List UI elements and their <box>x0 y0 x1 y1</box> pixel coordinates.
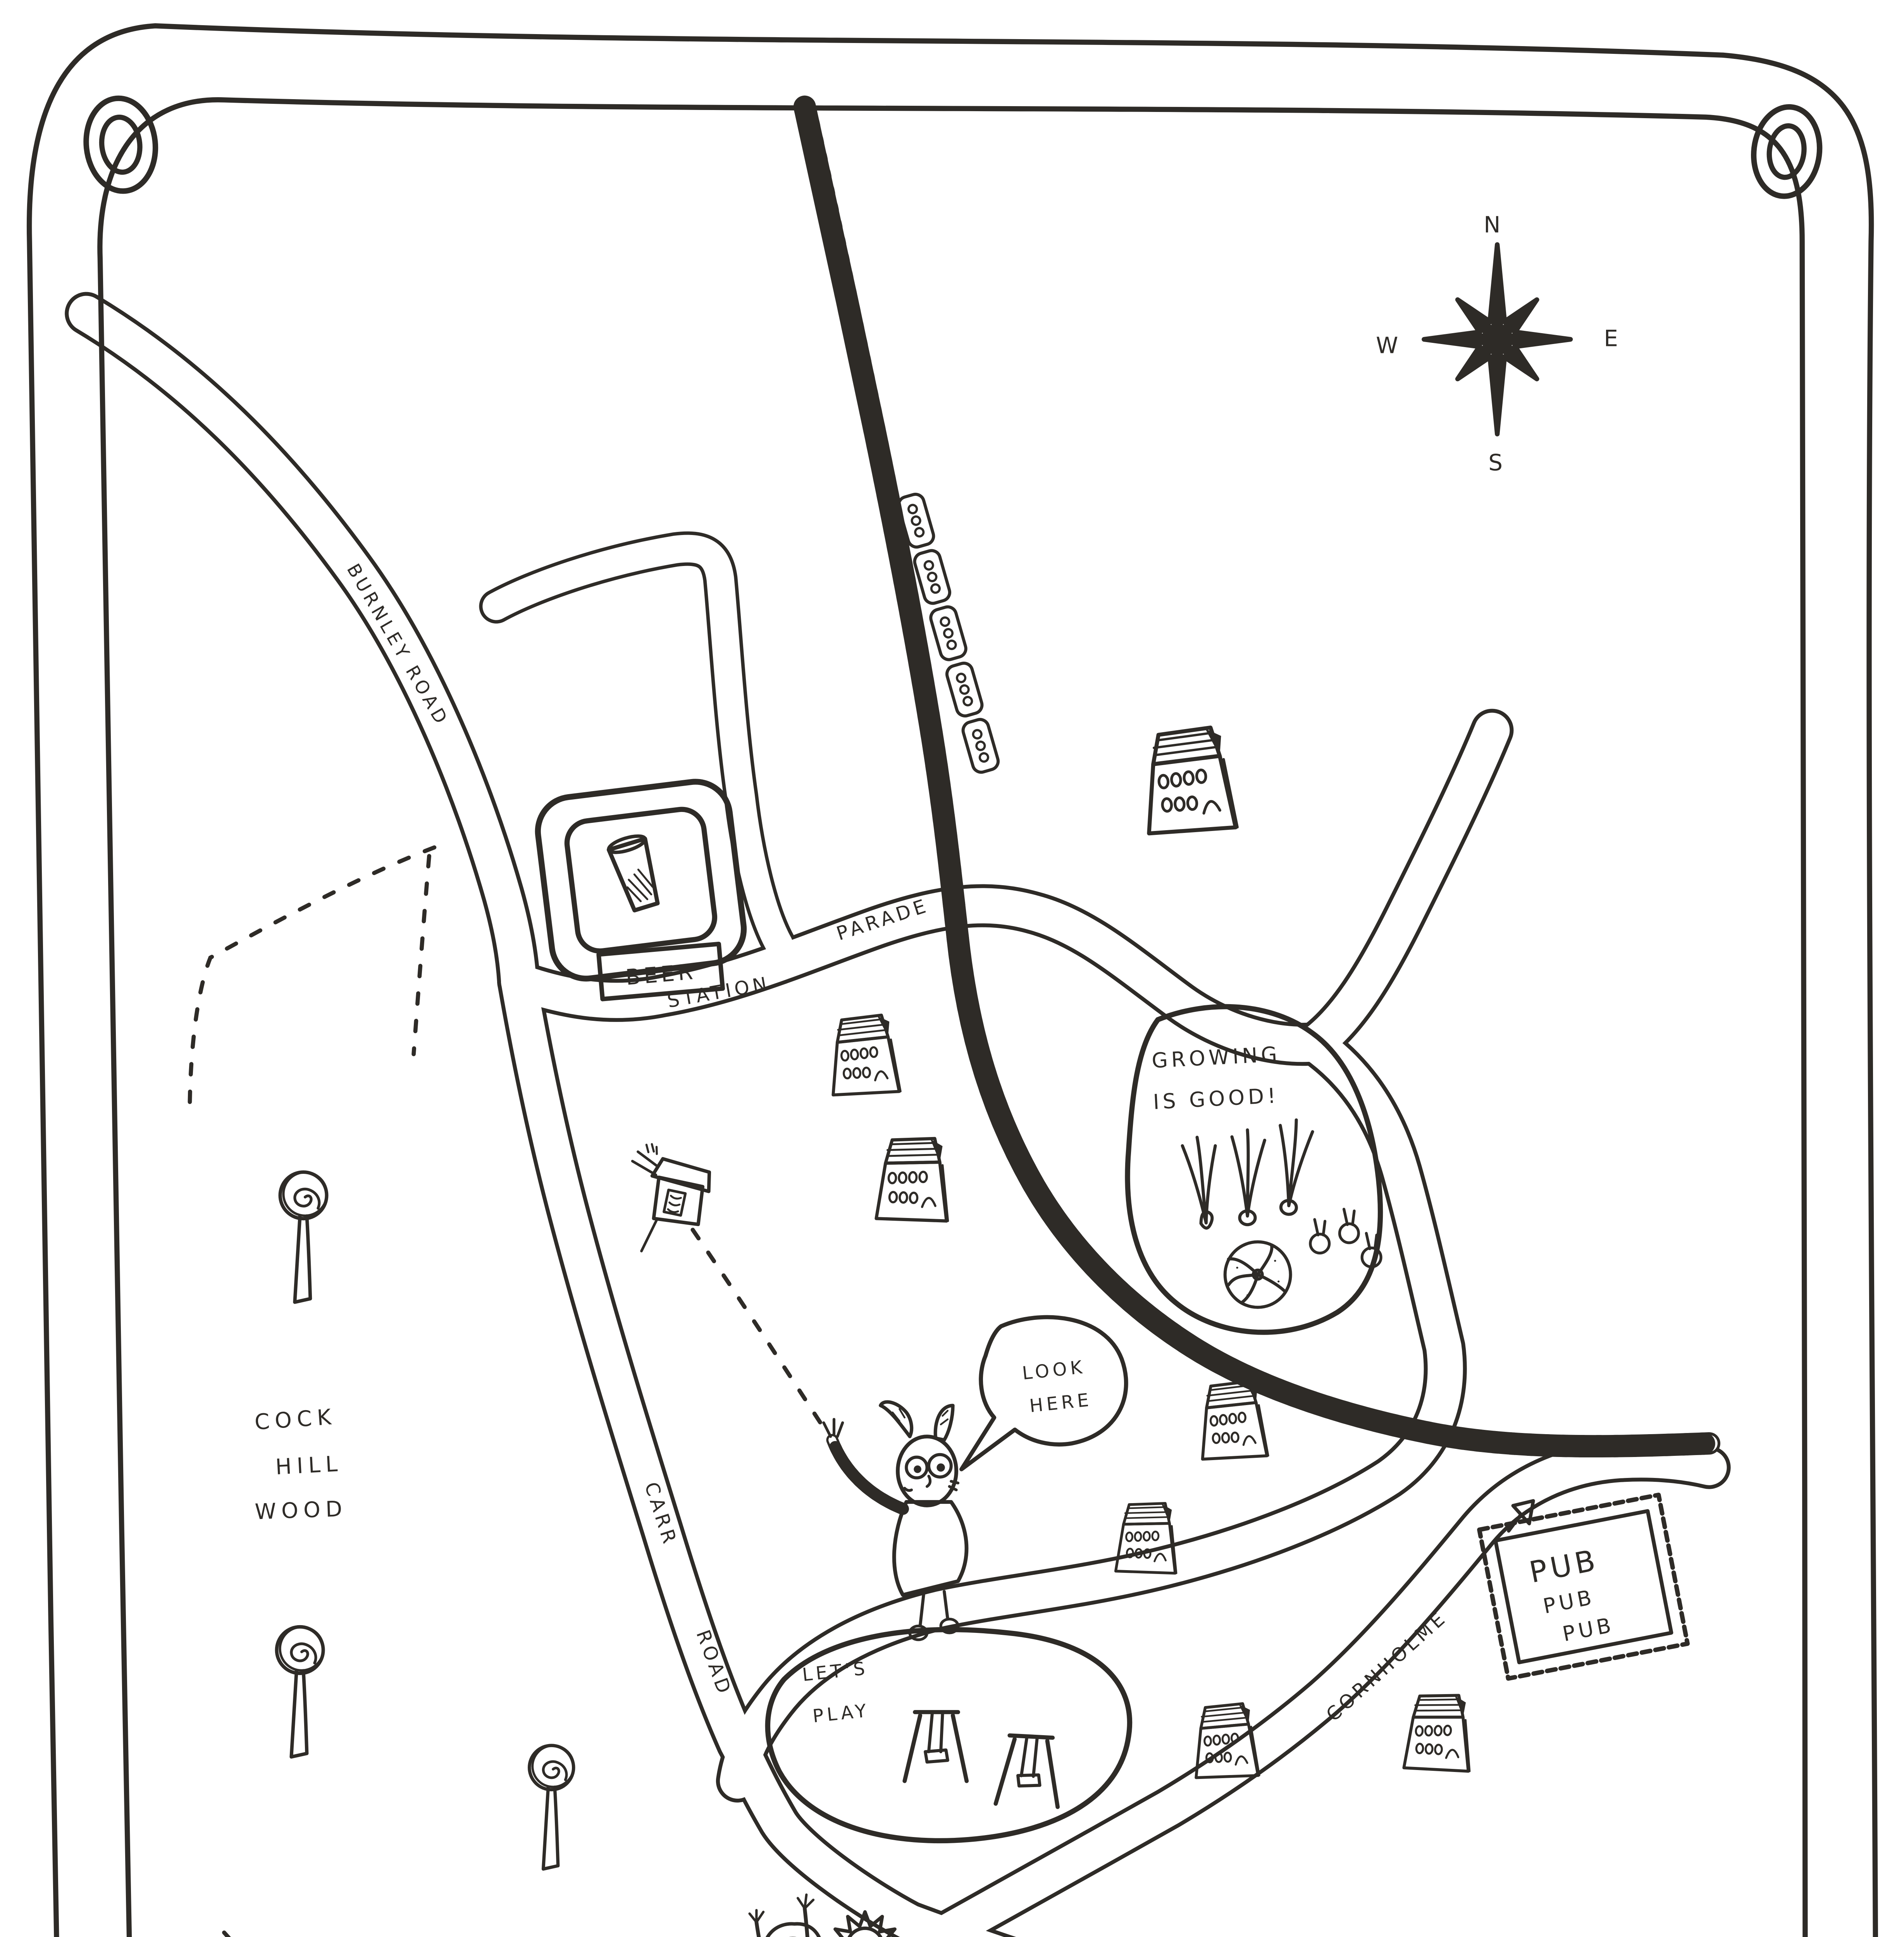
compass-south-label: S <box>1488 449 1503 476</box>
hand-drawn-map-page: BURNLEY ROAD STATION PARADE CARR ROAD CO… <box>0 0 1904 1937</box>
wood-label-2: HILL <box>275 1451 343 1480</box>
compass-north-label: N <box>1484 212 1500 238</box>
map-svg: BURNLEY ROAD STATION PARADE CARR ROAD CO… <box>0 0 1904 1937</box>
wood-label-3: WOOD <box>255 1496 348 1524</box>
compass-east-label: E <box>1604 325 1618 352</box>
compass-west-label: W <box>1376 332 1398 358</box>
